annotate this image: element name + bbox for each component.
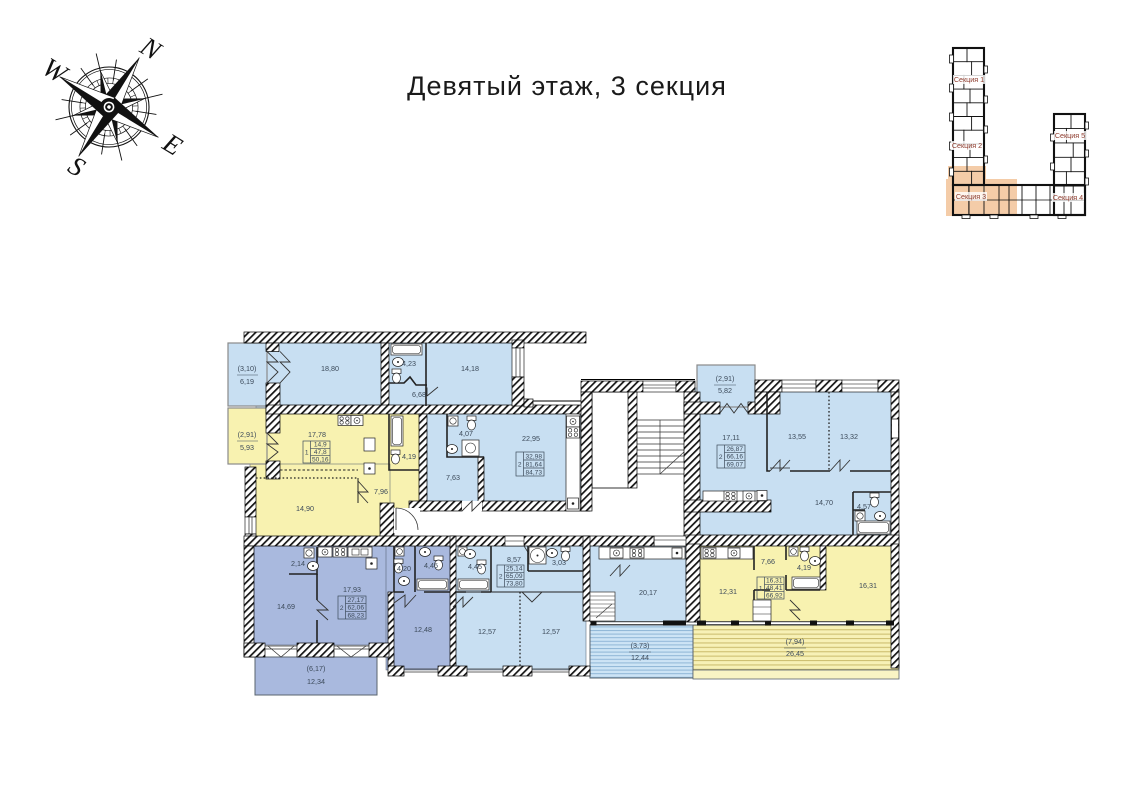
svg-text:Секция 4: Секция 4 — [1053, 193, 1083, 202]
svg-text:Девятый этаж, 3 секция: Девятый этаж, 3 секция — [407, 71, 727, 101]
svg-text:6,68: 6,68 — [412, 390, 426, 399]
svg-text:(2,91): (2,91) — [238, 430, 257, 439]
svg-text:12,31: 12,31 — [719, 587, 737, 596]
svg-text:4,19: 4,19 — [797, 563, 811, 572]
svg-text:4,23: 4,23 — [402, 359, 416, 368]
svg-text:7,96: 7,96 — [374, 487, 388, 496]
svg-text:6,19: 6,19 — [240, 377, 254, 386]
svg-text:17,93: 17,93 — [343, 585, 361, 594]
svg-text:73,80: 73,80 — [506, 580, 523, 587]
svg-text:4,57: 4,57 — [857, 502, 871, 511]
svg-text:14,18: 14,18 — [461, 364, 479, 373]
svg-text:13,32: 13,32 — [840, 432, 858, 441]
svg-text:(3,10): (3,10) — [238, 364, 257, 373]
svg-text:14,90: 14,90 — [296, 504, 314, 513]
svg-text:68,23: 68,23 — [347, 612, 364, 619]
svg-text:Секция 2: Секция 2 — [952, 141, 982, 150]
svg-text:2,14: 2,14 — [291, 559, 305, 568]
svg-text:8,57: 8,57 — [507, 555, 521, 564]
svg-text:47,8: 47,8 — [314, 449, 327, 456]
svg-text:2: 2 — [340, 605, 344, 612]
svg-text:65,09: 65,09 — [506, 573, 523, 580]
svg-text:17,78: 17,78 — [308, 430, 326, 439]
svg-text:18,80: 18,80 — [321, 364, 339, 373]
svg-text:3,03: 3,03 — [552, 558, 566, 567]
svg-text:13,55: 13,55 — [788, 432, 806, 441]
svg-text:4,19: 4,19 — [402, 452, 416, 461]
svg-text:4,07: 4,07 — [459, 429, 473, 438]
svg-text:(7,94): (7,94) — [786, 637, 805, 646]
svg-text:Секция 1: Секция 1 — [954, 75, 984, 84]
svg-text:12,57: 12,57 — [478, 627, 496, 636]
svg-text:16,31: 16,31 — [766, 578, 783, 585]
svg-text:5,93: 5,93 — [240, 443, 254, 452]
svg-text:1: 1 — [759, 585, 763, 592]
svg-text:32,98: 32,98 — [525, 453, 542, 460]
svg-text:25,14: 25,14 — [506, 566, 523, 573]
svg-text:26,87: 26,87 — [726, 446, 743, 453]
svg-text:5,82: 5,82 — [718, 386, 732, 395]
svg-text:22,95: 22,95 — [522, 434, 540, 443]
svg-text:16,31: 16,31 — [859, 581, 877, 590]
svg-text:50,16: 50,16 — [312, 456, 329, 463]
svg-text:Секция 3: Секция 3 — [956, 192, 986, 201]
svg-text:(3,73): (3,73) — [631, 641, 650, 650]
svg-text:14,69: 14,69 — [277, 602, 295, 611]
svg-text:26,45: 26,45 — [786, 649, 804, 658]
svg-text:4,45: 4,45 — [468, 562, 482, 571]
svg-text:27,17: 27,17 — [347, 597, 364, 604]
svg-text:12,44: 12,44 — [631, 653, 649, 662]
svg-text:14,70: 14,70 — [815, 498, 833, 507]
svg-text:Секция 5: Секция 5 — [1055, 131, 1085, 140]
svg-text:12,34: 12,34 — [307, 677, 325, 686]
svg-text:7,63: 7,63 — [446, 473, 460, 482]
svg-text:4,20: 4,20 — [397, 564, 411, 573]
svg-text:14,9: 14,9 — [314, 442, 327, 449]
svg-text:20,17: 20,17 — [639, 588, 657, 597]
svg-text:66,16: 66,16 — [726, 454, 743, 461]
svg-text:2: 2 — [518, 461, 522, 468]
svg-text:(6,17): (6,17) — [307, 664, 326, 673]
svg-text:(2,91): (2,91) — [716, 374, 735, 383]
svg-text:69,07: 69,07 — [726, 461, 743, 468]
svg-text:66,92: 66,92 — [766, 592, 783, 599]
svg-text:84,73: 84,73 — [525, 469, 542, 476]
svg-text:2: 2 — [499, 573, 503, 580]
svg-text:17,11: 17,11 — [722, 433, 739, 442]
svg-text:4,45: 4,45 — [424, 561, 438, 570]
svg-text:48,41: 48,41 — [766, 585, 783, 592]
svg-text:12,48: 12,48 — [414, 625, 432, 634]
svg-text:7,66: 7,66 — [761, 557, 775, 566]
svg-text:62,06: 62,06 — [347, 605, 364, 612]
svg-text:81,64: 81,64 — [525, 461, 542, 468]
svg-text:12,57: 12,57 — [542, 627, 560, 636]
svg-text:2: 2 — [719, 454, 723, 461]
svg-text:1: 1 — [305, 449, 309, 456]
